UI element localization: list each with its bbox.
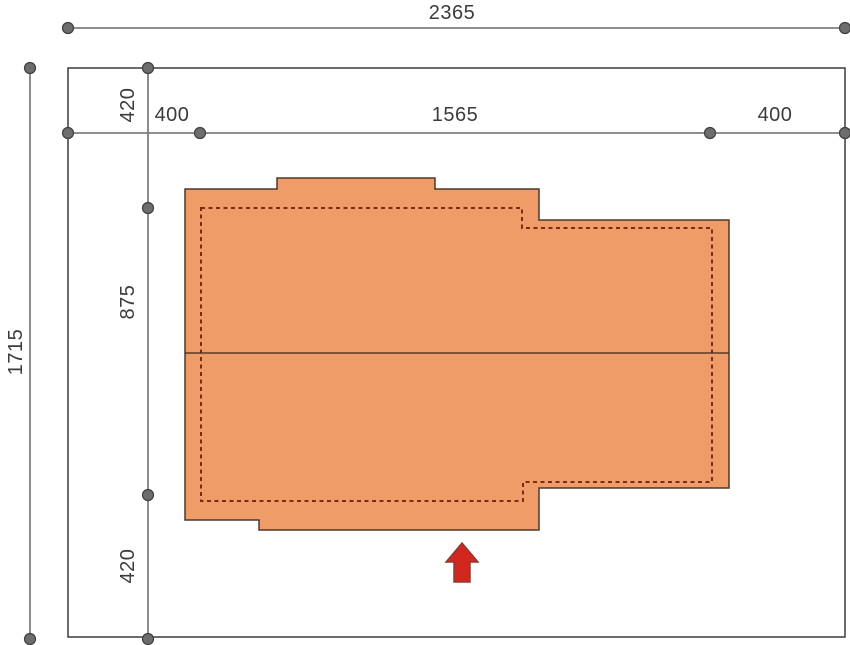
setback-right-label: 400 — [758, 104, 793, 126]
dimension-dot — [840, 128, 850, 139]
roof-outline — [185, 178, 729, 530]
dimension-dot — [63, 128, 74, 139]
dimension-dot — [63, 23, 74, 34]
site-plan-drawing: 2365 1715 400 1565 400 420 875 420 — [0, 0, 850, 645]
site-plan-svg: 2365 1715 400 1565 400 420 875 420 — [0, 0, 850, 645]
setback-left-label: 400 — [155, 104, 190, 126]
dimension-dot — [840, 23, 850, 34]
dimension-dot — [143, 634, 154, 645]
dimension-dot — [195, 128, 206, 139]
dimension-dot — [143, 63, 154, 74]
plot-width-label: 2365 — [429, 2, 476, 24]
setback-bottom-label: 420 — [117, 549, 139, 584]
dimension-dot — [25, 634, 36, 645]
dimension-line-plot-height: 1715 — [5, 63, 36, 645]
dimension-line-horizontal-inner: 400 1565 400 — [63, 104, 850, 139]
house-width-label: 1565 — [432, 104, 479, 126]
dimension-line-plot-width: 2365 — [63, 2, 850, 34]
setback-top-label: 420 — [117, 88, 139, 123]
entrance-arrow-icon — [446, 543, 478, 582]
dimension-dot — [705, 128, 716, 139]
house-depth-label: 875 — [117, 285, 139, 320]
dimension-line-vertical-inner: 420 875 420 — [117, 63, 154, 645]
dimension-dot — [25, 63, 36, 74]
plot-height-label: 1715 — [5, 329, 27, 376]
dimension-dot — [143, 490, 154, 501]
dimension-dot — [143, 203, 154, 214]
